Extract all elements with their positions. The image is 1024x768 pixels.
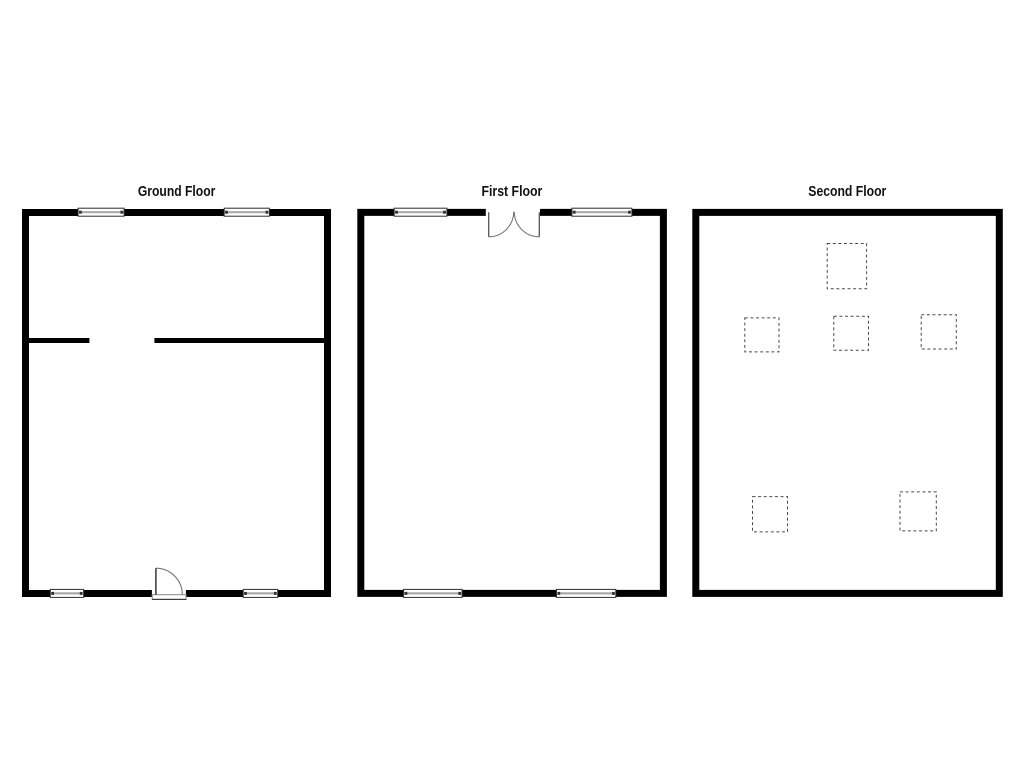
- svg-text:Ground Floor: Ground Floor: [138, 184, 216, 200]
- svg-text:First Floor: First Floor: [482, 184, 543, 200]
- svg-text:Second Floor: Second Floor: [808, 184, 886, 200]
